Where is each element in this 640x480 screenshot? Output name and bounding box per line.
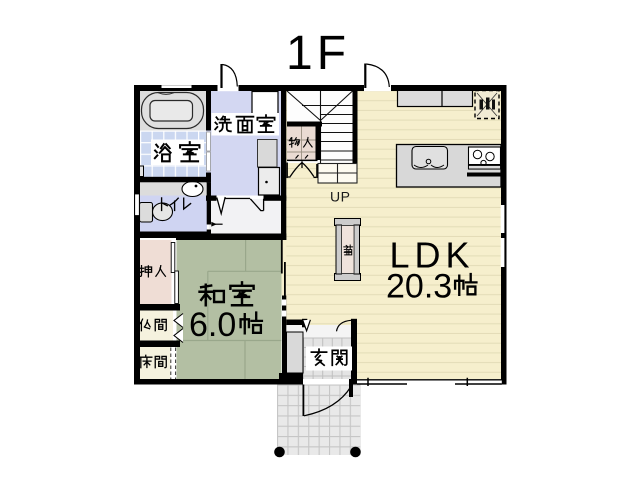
- svg-text:UP: UP: [330, 189, 350, 205]
- svg-text:1F: 1F: [286, 27, 350, 80]
- svg-text:20.3: 20.3: [386, 268, 452, 306]
- svg-text:6.0: 6.0: [189, 306, 236, 344]
